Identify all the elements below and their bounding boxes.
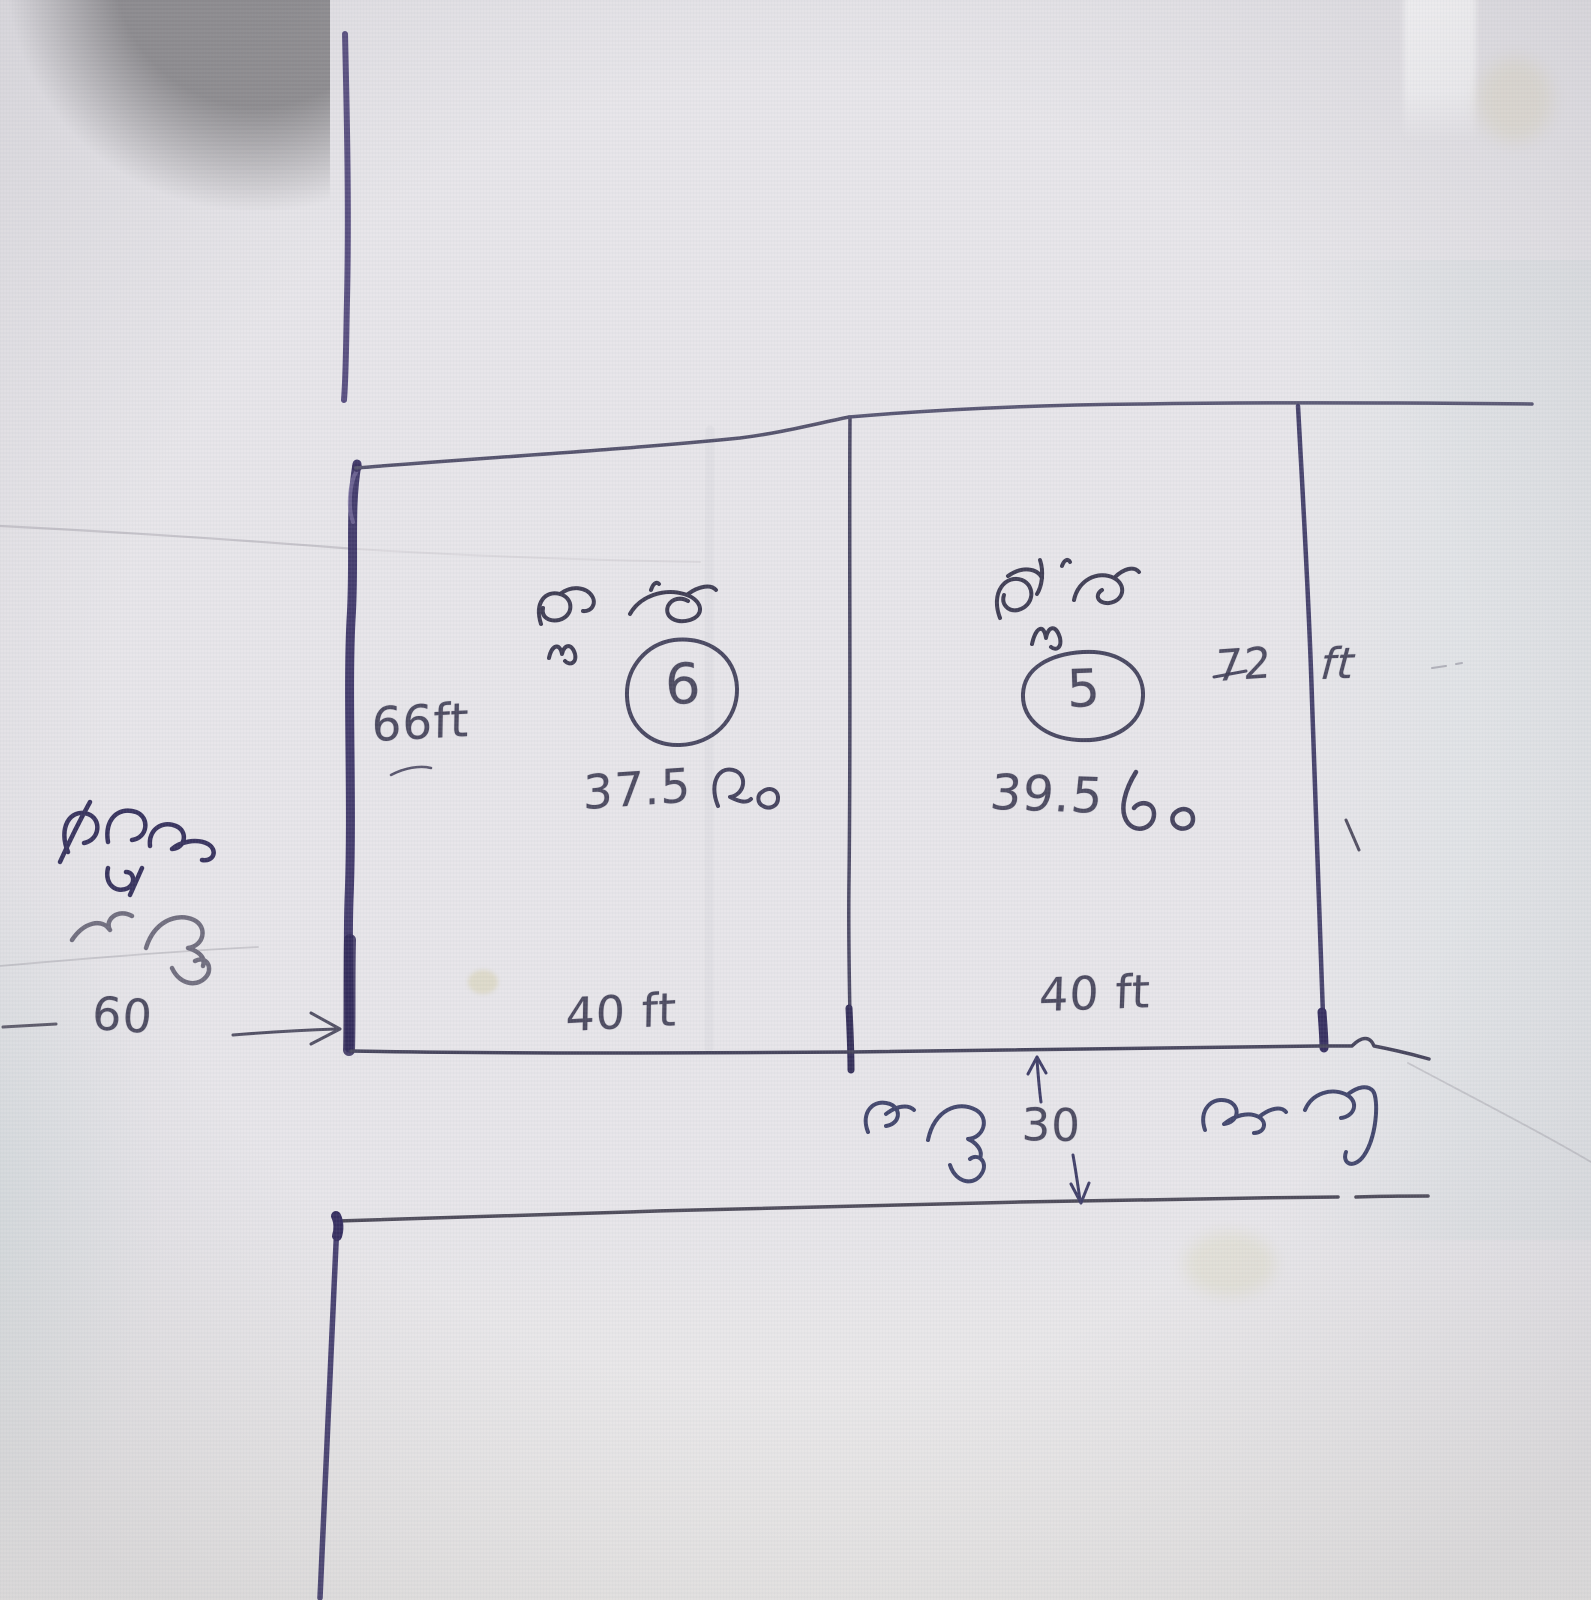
telugu-left-margin-line1-script: డ్రైనం	[60, 802, 214, 895]
plot6-number: 6	[664, 657, 703, 714]
plot5-right-boundary	[1298, 406, 1324, 1044]
left-60-arrow	[233, 1013, 340, 1044]
telugu-left-margin-road-script: రోడ్డు	[72, 913, 209, 983]
telugu-bottom-unit-script: మాట్లు	[1203, 1087, 1376, 1164]
plot6-left-boundary-retrace	[349, 940, 350, 1050]
plot6-front-dimension: 40 ft	[565, 986, 677, 1038]
top-left-road-line	[344, 34, 348, 400]
plot6-side-dimension: 66ft	[371, 697, 470, 749]
plot5-top-boundary	[849, 403, 1532, 417]
plot-boundary-lines	[320, 34, 1532, 1598]
plot6-area-label: 37.5	[583, 762, 691, 817]
plot5-side-value: 72	[1214, 642, 1272, 689]
plot5-side-unit: ft	[1319, 643, 1356, 687]
ft-underline	[391, 767, 431, 775]
left-road-corner-blob	[336, 1216, 338, 1236]
right-side-tick	[1346, 820, 1359, 850]
plot5-front-dimension: 40 ft	[1038, 968, 1151, 1018]
telugu-area-unit-plot5-script: లం	[1123, 772, 1193, 829]
left-road-vertical	[320, 1222, 337, 1598]
plot5-area-label: 39.5	[988, 768, 1106, 821]
faint-dash-after-ft	[1432, 663, 1462, 668]
road-width-down-arrow	[1071, 1155, 1089, 1203]
plot5-number: 5	[1066, 663, 1102, 716]
sketch-ink-layer: ప్లాట్ ప్లాట్ లం లం	[0, 0, 1591, 1600]
plot5-right-boundary-blob	[1322, 1012, 1324, 1048]
plot-divider-line	[849, 417, 851, 1068]
photographed-plot-sketch: ప్లాట్ ప్లాట్ లం లం	[0, 0, 1591, 1600]
road-lower-edge	[338, 1196, 1428, 1221]
telugu-bottom-road-script: రోడ్డు	[866, 1103, 984, 1182]
left-60-dash	[3, 1024, 56, 1027]
plot6-top-boundary	[356, 417, 849, 468]
telugu-plot5-label-script: ప్లాట్	[997, 560, 1139, 649]
left-road-width: 60	[91, 990, 155, 1040]
telugu-area-unit-plot6-script: లం	[714, 769, 778, 807]
plot-number-circles	[627, 639, 1143, 745]
road-width-up-arrow	[1028, 1057, 1046, 1102]
plot-divider-bottom-thick	[849, 1008, 851, 1070]
plots-bottom-boundary	[351, 1039, 1429, 1060]
bottom-road-width: 30	[1021, 1102, 1081, 1148]
